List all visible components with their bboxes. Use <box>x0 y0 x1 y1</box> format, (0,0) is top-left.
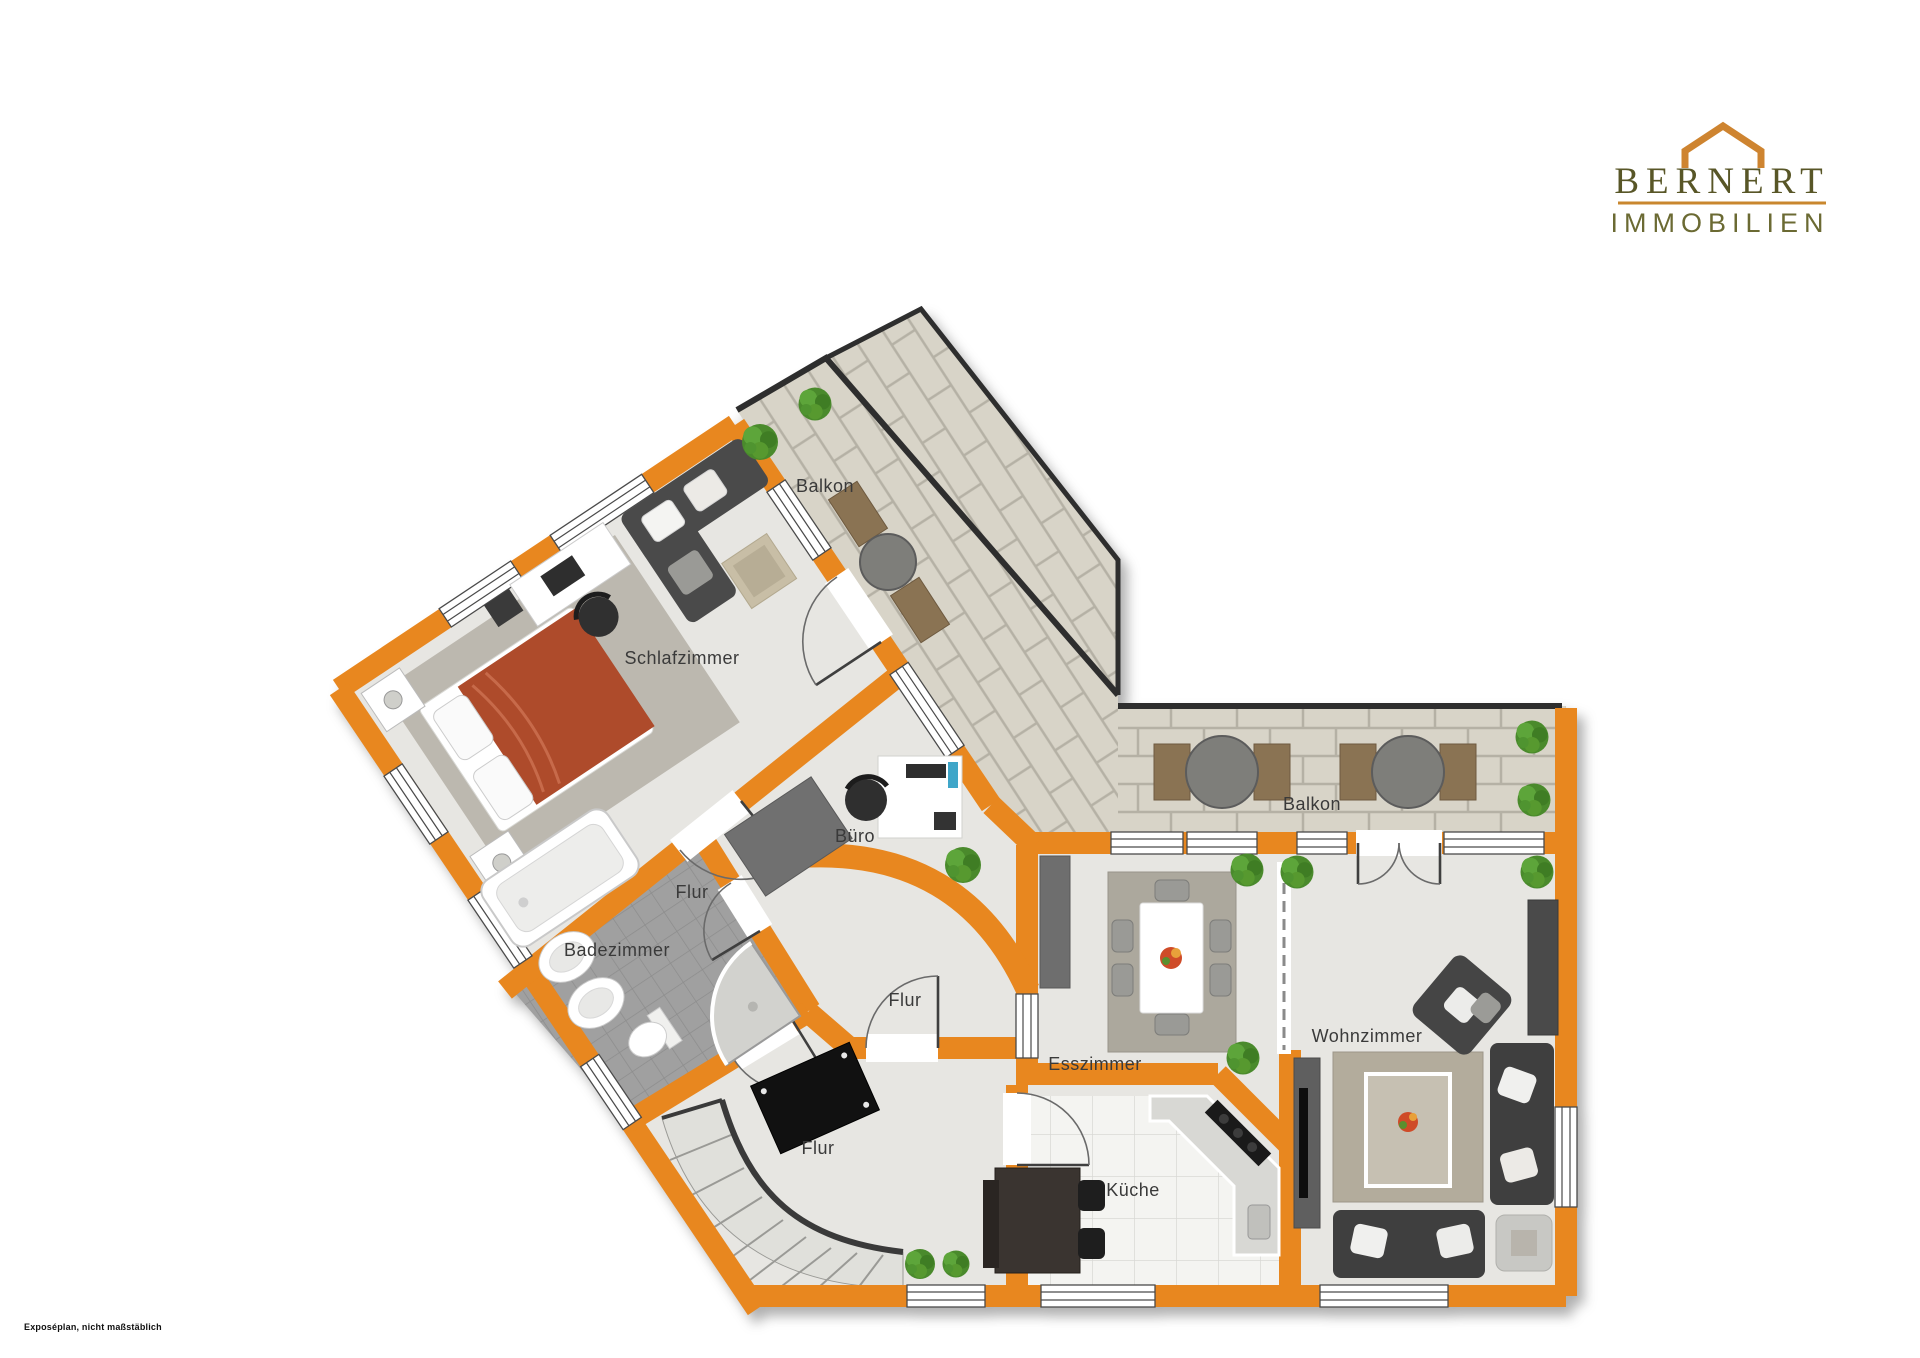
window <box>1320 1285 1448 1307</box>
window <box>1444 832 1544 854</box>
plant-icon <box>742 424 778 460</box>
floorplan-page: Balkon Schlafzimmer Büro Flur Badezimmer… <box>0 0 1920 1358</box>
plant-icon <box>1231 854 1264 887</box>
plant-icon <box>943 1251 970 1278</box>
living-wardrobe <box>1528 900 1558 1035</box>
logo: BERNERT IMMOBILIEN <box>1610 126 1829 238</box>
tv <box>1299 1088 1308 1198</box>
room-label-flur-klein: Flur <box>676 882 709 902</box>
window <box>1041 1285 1155 1307</box>
balcony-table <box>1186 736 1258 808</box>
window <box>1555 1107 1577 1207</box>
logo-name: BERNERT <box>1614 161 1829 202</box>
plant-icon <box>945 847 981 883</box>
apartment-plan: Balkon Schlafzimmer Büro Flur Badezimmer… <box>339 309 1577 1309</box>
floorplan-canvas: Balkon Schlafzimmer Büro Flur Badezimmer… <box>0 0 1920 1358</box>
plant-icon <box>799 388 832 421</box>
sofa <box>1490 1043 1554 1205</box>
room-label-flur-mitte: Flur <box>889 990 922 1010</box>
kitchen-chair <box>1078 1228 1105 1259</box>
kitchen-chair <box>1078 1180 1105 1211</box>
dining-chair <box>1210 964 1231 996</box>
window <box>1016 994 1038 1058</box>
glass-partition <box>1277 862 1291 1054</box>
room-label-kueche: Küche <box>1106 1180 1160 1200</box>
balcony-table <box>860 534 916 590</box>
plant-icon <box>1518 784 1551 817</box>
room-label-balkon-top: Balkon <box>796 476 854 496</box>
side-table-top <box>1511 1230 1537 1256</box>
dining-chair <box>1155 1014 1189 1035</box>
room-label-buero: Büro <box>835 826 875 846</box>
disclaimer-text: Exposéplan, nicht maßstäblich <box>24 1322 162 1332</box>
balcony-chair <box>1254 744 1290 800</box>
room-label-flur-unten: Flur <box>802 1138 835 1158</box>
room-label-badezimmer: Badezimmer <box>564 940 670 960</box>
window <box>907 1285 985 1307</box>
window <box>1187 832 1257 854</box>
kitchen-sink <box>1248 1205 1270 1239</box>
room-label-wohnzimmer: Wohnzimmer <box>1312 1026 1423 1046</box>
room-label-schlafzimmer: Schlafzimmer <box>624 648 739 668</box>
balcony-table <box>1372 736 1444 808</box>
plant-icon <box>1521 856 1554 889</box>
balcony-chair <box>1340 744 1376 800</box>
kitchen-table <box>995 1168 1080 1273</box>
balcony-chair <box>1440 744 1476 800</box>
plant-icon <box>1281 856 1314 889</box>
plant-icon <box>1516 721 1549 754</box>
dining-chair <box>1112 920 1133 952</box>
plant-icon <box>905 1249 935 1279</box>
plant-icon <box>1227 1042 1260 1075</box>
balcony-chair <box>1154 744 1190 800</box>
dining-chair <box>1155 880 1189 901</box>
window <box>1297 832 1347 854</box>
monitor <box>906 764 946 778</box>
window <box>1111 832 1183 854</box>
room-label-balkon-rechts: Balkon <box>1283 794 1341 814</box>
logo-subtitle: IMMOBILIEN <box>1610 208 1829 238</box>
dining-wardrobe <box>1040 856 1070 988</box>
kitchen-bench <box>983 1180 999 1268</box>
dining-chair <box>1210 920 1231 952</box>
dining-chair <box>1112 964 1133 996</box>
room-label-esszimmer: Esszimmer <box>1048 1054 1142 1074</box>
desk-accessory <box>948 762 958 788</box>
printer <box>934 812 956 830</box>
